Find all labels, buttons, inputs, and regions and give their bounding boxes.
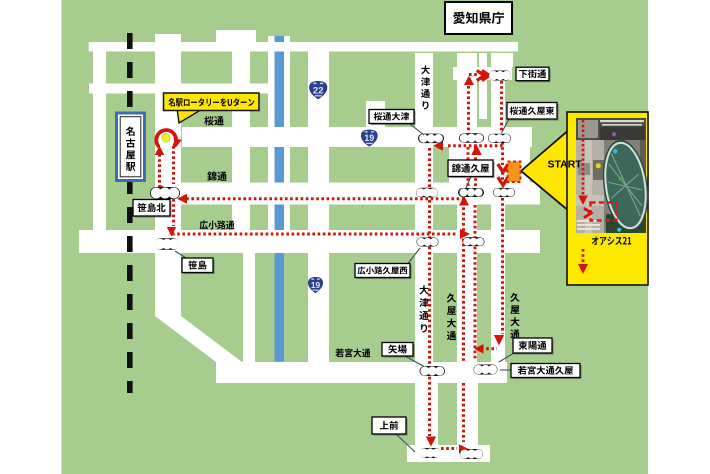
svg-text:START: START [548,159,583,171]
svg-text:22: 22 [313,85,324,96]
svg-text:19: 19 [364,133,374,143]
svg-text:19: 19 [311,280,321,290]
